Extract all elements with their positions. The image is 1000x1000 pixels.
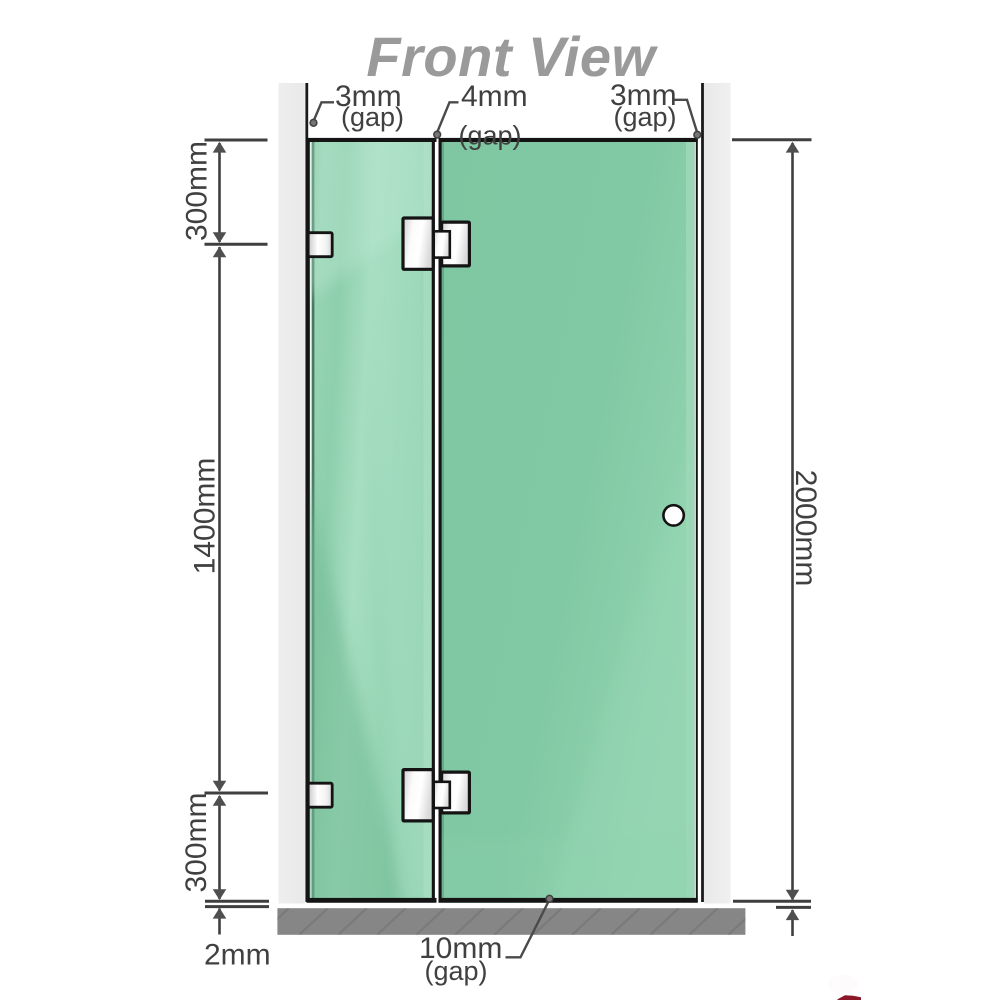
svg-text:1400mm: 1400mm: [189, 458, 222, 575]
svg-text:(gap): (gap): [341, 102, 404, 132]
svg-text:(gap): (gap): [613, 102, 676, 132]
svg-text:300mm: 300mm: [181, 141, 214, 241]
svg-text:300mm: 300mm: [180, 792, 213, 892]
svg-text:4mm: 4mm: [461, 80, 528, 113]
svg-text:2mm: 2mm: [204, 939, 271, 972]
svg-text:2000mm: 2000mm: [789, 470, 822, 587]
svg-text:(gap): (gap): [424, 956, 487, 986]
svg-text:(gap): (gap): [458, 121, 521, 151]
